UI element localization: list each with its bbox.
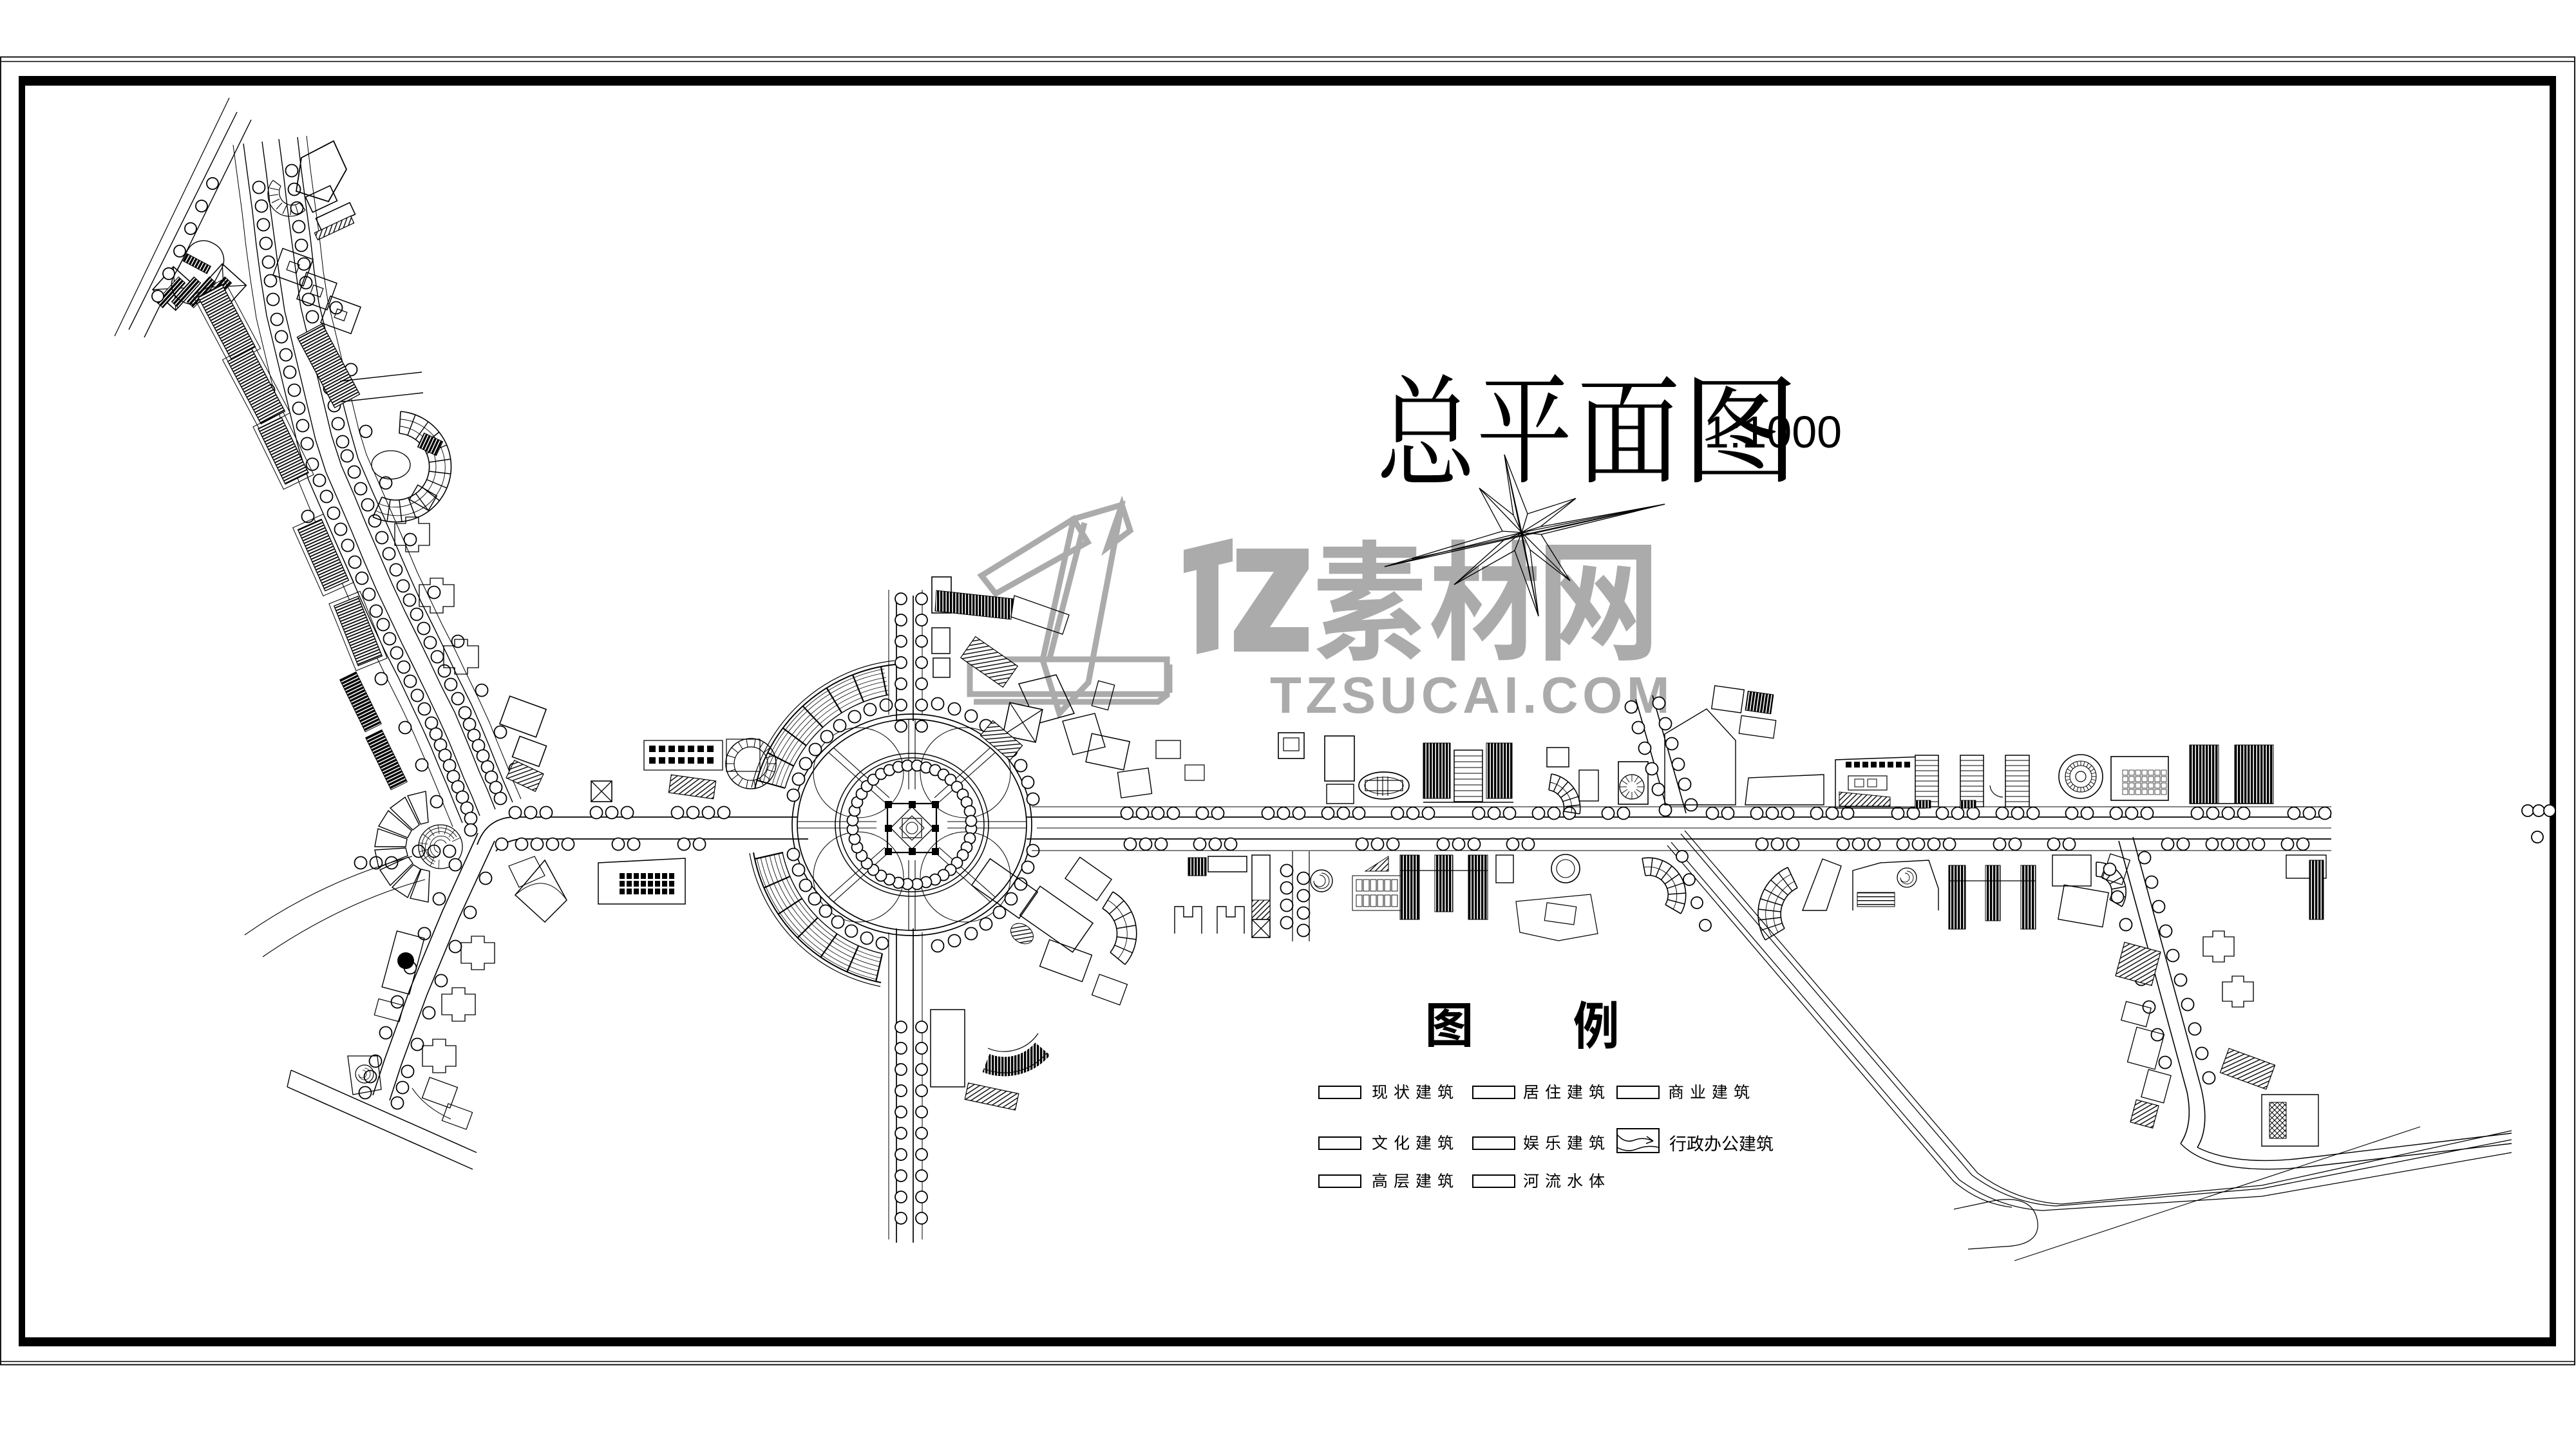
svg-text:TZSUCAI.COM: TZSUCAI.COM (1270, 666, 1674, 724)
svg-text:1:1000: 1:1000 (1704, 407, 1842, 457)
